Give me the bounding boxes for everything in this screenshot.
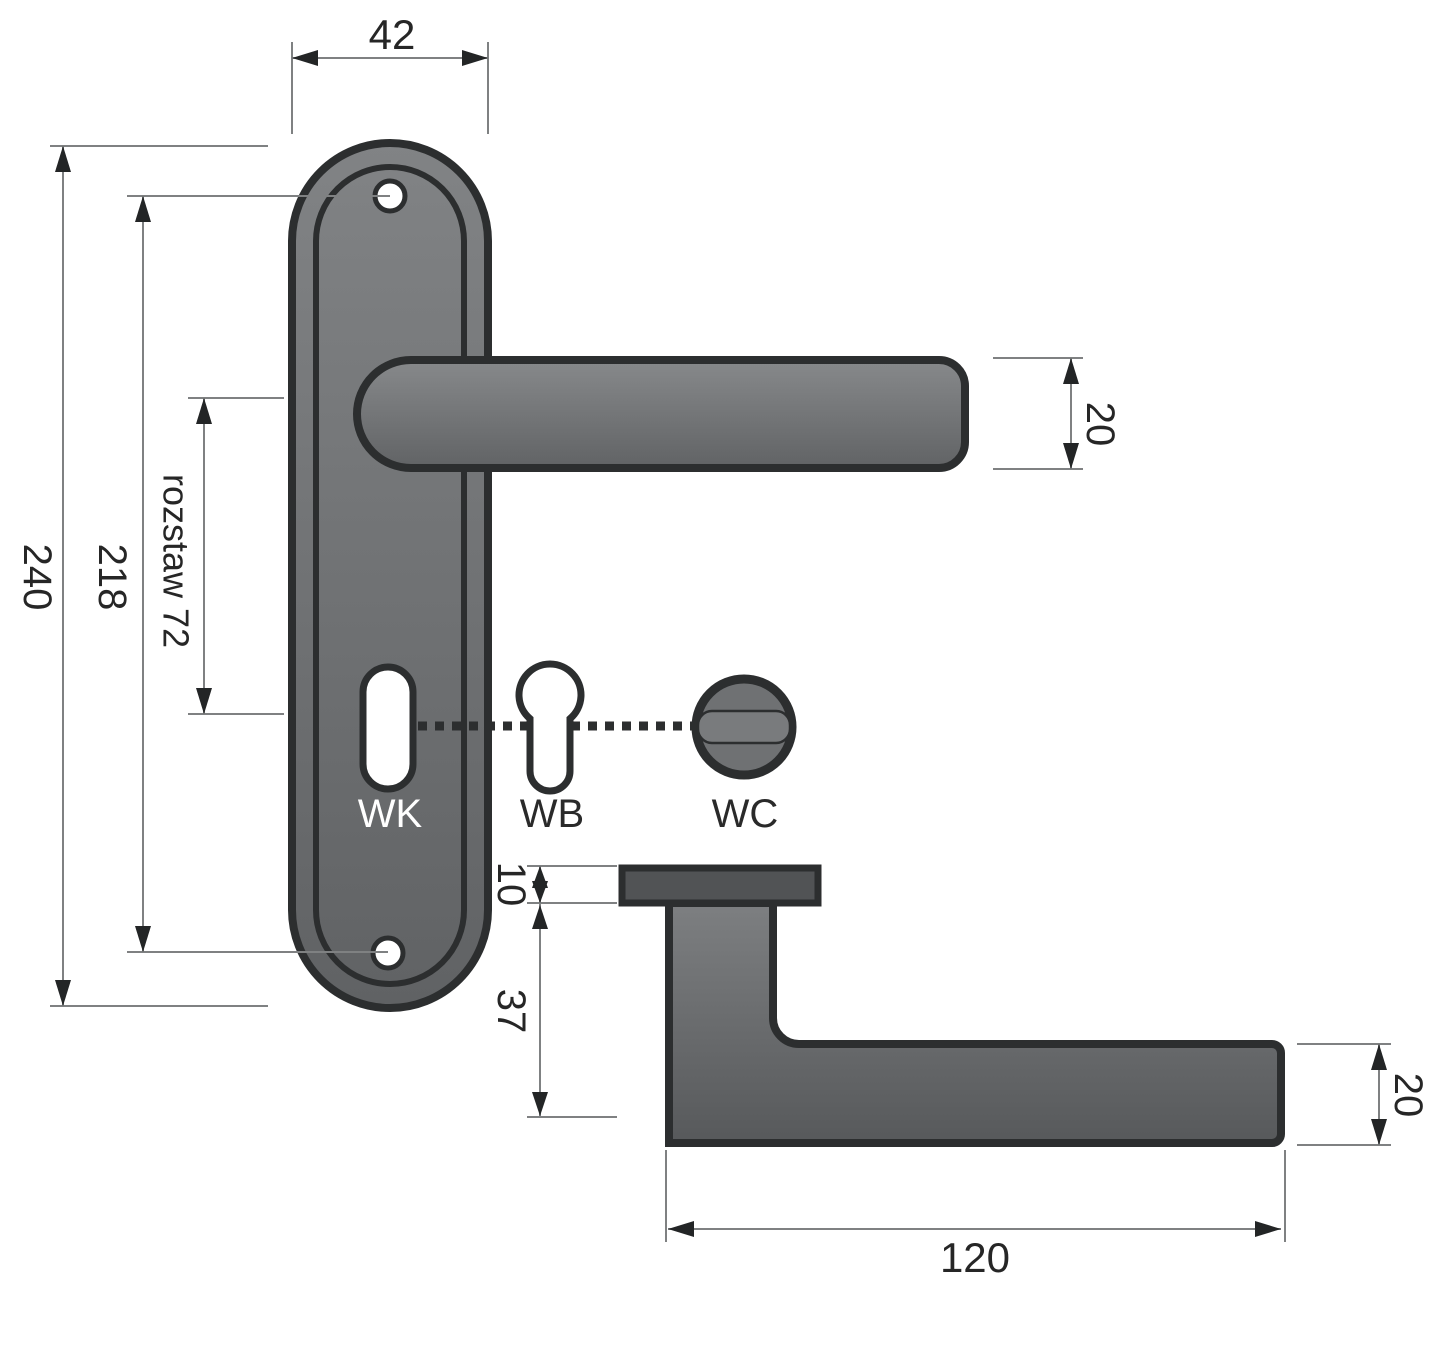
dim-lever-thickness-side: 20 (1297, 1044, 1430, 1145)
dim-neck-height-label: 37 (489, 989, 533, 1034)
dim-hole-spacing-label: 218 (90, 544, 134, 611)
rosette-side (622, 868, 818, 903)
dim-lever-thickness-front: 20 (993, 358, 1122, 469)
side-view (622, 868, 1281, 1143)
technical-drawing-page: WK WB WC 42 240 218 (0, 0, 1445, 1345)
label-wb: WB (520, 792, 584, 836)
dim-overall-height: 240 (15, 146, 268, 1006)
euro-cylinder-wb (519, 664, 581, 791)
dim-lever-length-label: 120 (940, 1234, 1010, 1281)
backplate (292, 143, 488, 1008)
dim-rosette-thickness-label: 10 (489, 862, 533, 907)
dim-rosette-thickness: 10 (489, 862, 617, 907)
dim-key-spacing-label: rozstaw 72 (156, 474, 197, 648)
lever-handle-side (669, 903, 1281, 1143)
dim-plate-width: 42 (292, 11, 488, 134)
dim-lever-thickness-front-label: 20 (1078, 402, 1122, 447)
dim-neck-height: 37 (489, 903, 617, 1117)
dim-lever-length: 120 (666, 1150, 1285, 1281)
label-wc: WC (712, 792, 779, 836)
dim-overall-height-label: 240 (15, 544, 59, 611)
label-wk: WK (358, 792, 423, 836)
thumbturn-slot (698, 711, 790, 743)
dim-lever-thickness-side-label: 20 (1386, 1073, 1430, 1118)
drawing-canvas: WK WB WC 42 240 218 (0, 0, 1445, 1345)
keyhole-wk (363, 667, 413, 789)
lever-handle-front (357, 360, 965, 468)
dim-plate-width-label: 42 (369, 11, 416, 58)
dim-key-spacing: rozstaw 72 (156, 398, 285, 714)
